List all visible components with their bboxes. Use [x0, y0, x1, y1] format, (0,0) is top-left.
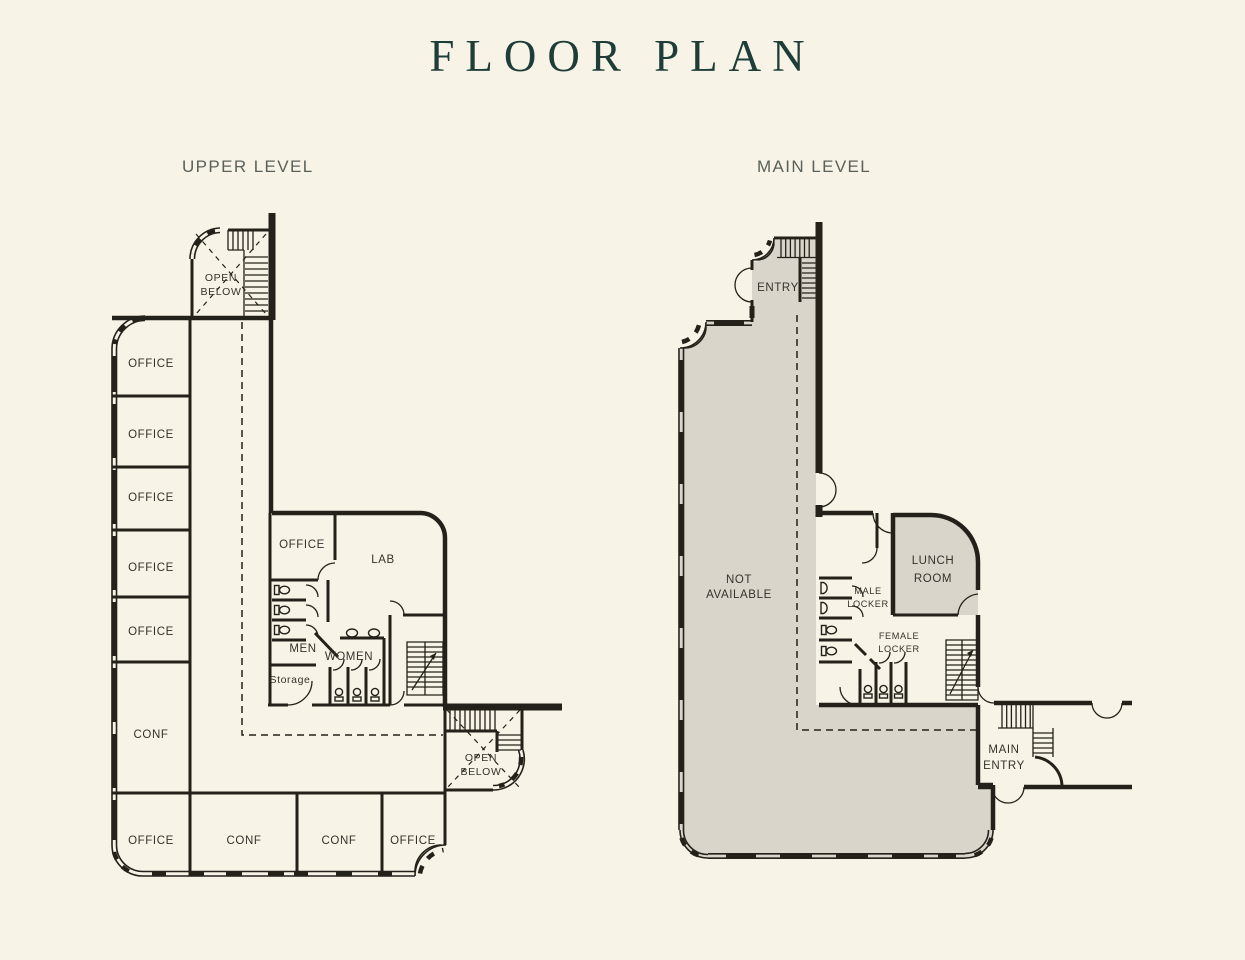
label-lunch-room-1: LUNCH — [912, 555, 955, 567]
main-locker-stairs — [946, 640, 978, 700]
label-conf-left: CONF — [134, 729, 169, 741]
label-office-3: OFFICE — [128, 492, 174, 504]
label-not-available-1: NOT — [726, 574, 752, 586]
upper-level-plan: OPEN BELOW OFFICE OFFICE OFFICE OFFICE O… — [112, 213, 562, 876]
upper-interior-walls — [112, 318, 445, 876]
label-female-locker-1: FEMALE — [879, 631, 919, 641]
label-women: WOMEN — [325, 651, 373, 663]
main-level-plan: ENTRY NOT AVAILABLE LUNCH ROOM MALE LOCK… — [679, 222, 1132, 858]
label-bottom-conf-2: CONF — [322, 835, 357, 847]
label-bottom-conf-1: CONF — [227, 835, 262, 847]
main-gray-areas — [680, 240, 993, 858]
label-office-1: OFFICE — [128, 358, 174, 370]
label-not-available-2: AVAILABLE — [706, 589, 772, 601]
label-main-entry-2: ENTRY — [983, 760, 1025, 772]
label-open-below-lower-1: OPEN — [465, 752, 497, 764]
label-female-locker-2: LOCKER — [878, 644, 919, 654]
label-entry: ENTRY — [757, 282, 799, 294]
label-storage: Storage — [270, 674, 311, 686]
label-open-below-upper-1: OPEN — [205, 272, 237, 284]
label-office-5: OFFICE — [128, 626, 174, 638]
label-office-mid: OFFICE — [279, 539, 325, 551]
floor-plan-page: FLOOR PLAN UPPER LEVEL MAIN LEVEL — [0, 0, 1245, 960]
label-male-locker-2: LOCKER — [847, 599, 888, 609]
label-male-locker-1: MALE — [854, 586, 881, 596]
label-bottom-office-1: OFFICE — [128, 835, 174, 847]
label-men: MEN — [289, 643, 316, 655]
label-bottom-office-2: OFFICE — [390, 835, 436, 847]
label-office-4: OFFICE — [128, 562, 174, 574]
label-main-entry-1: MAIN — [988, 744, 1019, 756]
label-office-2: OFFICE — [128, 429, 174, 441]
label-open-below-upper-2: BELOW — [201, 286, 242, 298]
label-lunch-room-2: ROOM — [914, 573, 952, 585]
label-open-below-lower-2: BELOW — [461, 766, 502, 778]
label-lab: LAB — [371, 554, 395, 566]
floor-plan-drawing: OPEN BELOW OFFICE OFFICE OFFICE OFFICE O… — [0, 0, 1245, 960]
